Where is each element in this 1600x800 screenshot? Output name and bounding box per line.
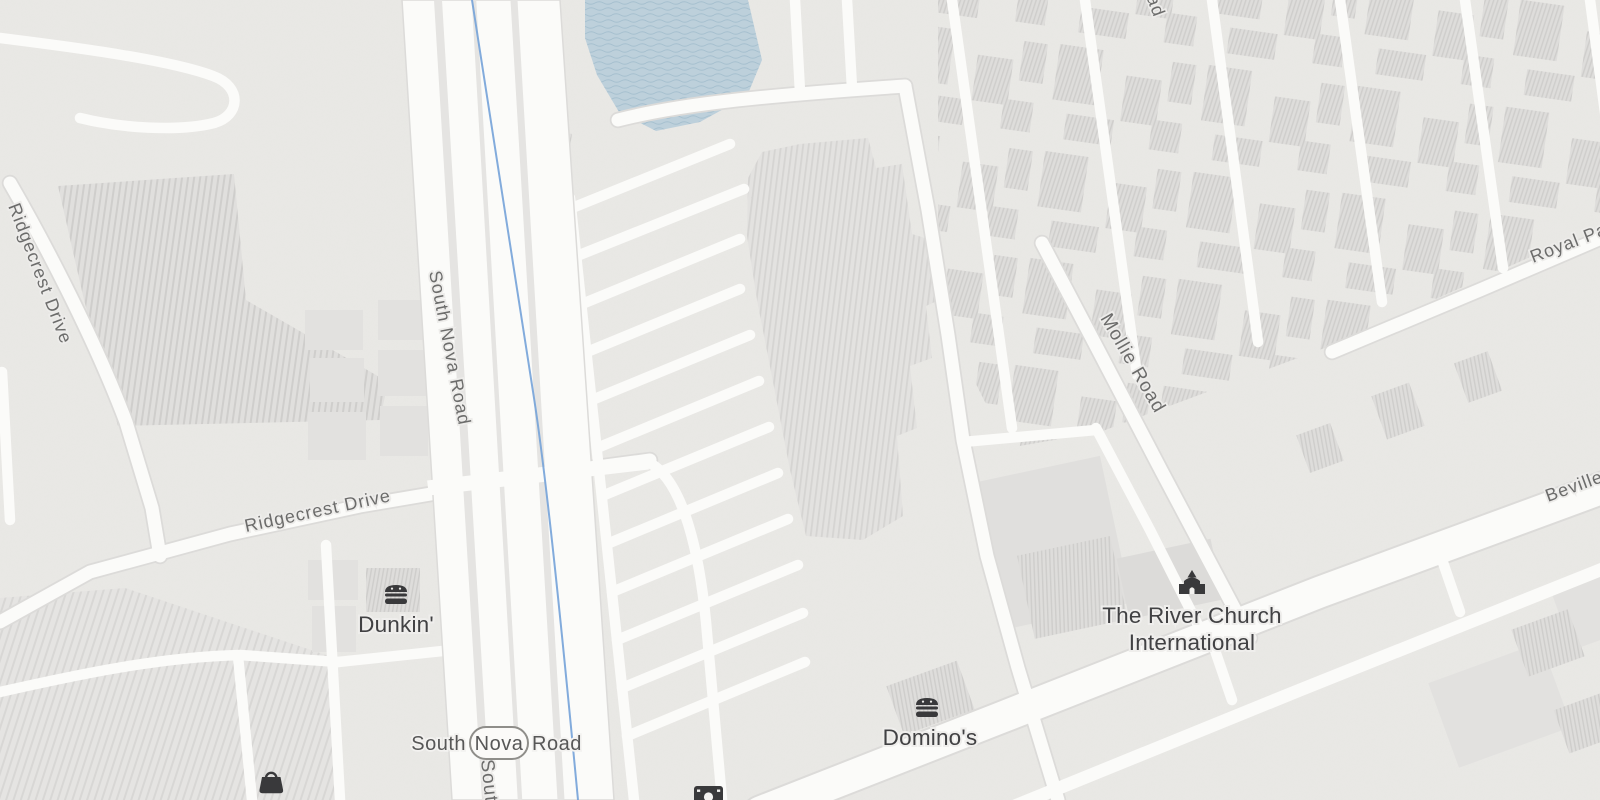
poi-label-church-line1[interactable]: The River Church: [1102, 603, 1282, 628]
shield-word-center: Nova: [475, 733, 524, 755]
map-canvas[interactable]: Ridgecrest Drive South Nova Road Ridgecr…: [0, 0, 1600, 800]
fastfood-icon: [385, 585, 407, 604]
poi-label-dunkin[interactable]: Dunkin': [358, 612, 434, 637]
shield-word-right: Road: [532, 733, 582, 755]
poi-label-church-line2[interactable]: International: [1129, 630, 1255, 655]
fastfood-icon: [916, 698, 938, 717]
poi-bank[interactable]: [694, 786, 723, 800]
banknote-icon: [694, 786, 723, 800]
shield-word-left: South: [411, 733, 466, 755]
poi-label-dominos[interactable]: Domino's: [883, 725, 978, 750]
